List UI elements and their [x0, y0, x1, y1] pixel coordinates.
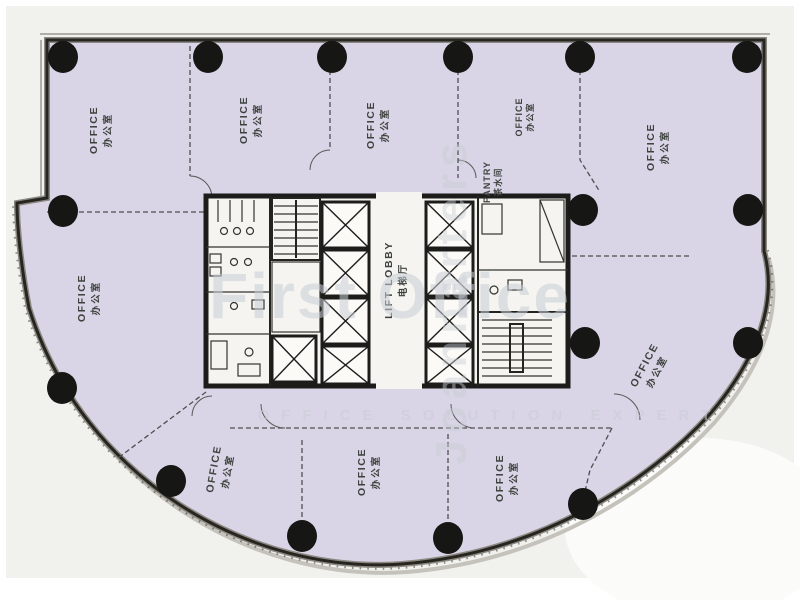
column-dot	[317, 41, 347, 73]
floor-plan: OFFICE 办公室 OFFICE 办公室 OFFICE 办公室 OFFICE …	[0, 0, 800, 600]
column-dot	[48, 195, 78, 227]
column-dot	[732, 41, 762, 73]
column-dot	[47, 372, 77, 404]
svg-text:OFFICE: OFFICE	[365, 101, 377, 149]
column-dot	[570, 327, 600, 359]
svg-text:办公室: 办公室	[659, 130, 671, 165]
svg-text:办公室: 办公室	[525, 102, 535, 131]
svg-text:OFFICE: OFFICE	[494, 454, 506, 502]
watermark-brand: First Office	[209, 260, 571, 332]
svg-text:PANTRY: PANTRY	[482, 161, 492, 203]
column-dot	[733, 327, 763, 359]
column-dot	[568, 488, 598, 520]
svg-text:办公室: 办公室	[379, 108, 391, 143]
svg-text:办公室: 办公室	[252, 103, 264, 138]
lobby-opening-bottom	[376, 382, 422, 389]
svg-text:办公室: 办公室	[370, 455, 382, 490]
floor-plan-canvas: OFFICE 办公室 OFFICE 办公室 OFFICE 办公室 OFFICE …	[0, 0, 800, 600]
svg-text:茶水间: 茶水间	[493, 167, 503, 197]
svg-text:OFFICE: OFFICE	[645, 123, 657, 171]
svg-text:办公室: 办公室	[90, 281, 102, 316]
service-lift	[272, 336, 316, 382]
column-dot	[287, 520, 317, 552]
svg-text:OFFICE: OFFICE	[238, 96, 250, 144]
column-dot	[433, 522, 463, 554]
watermark-vertical: Joannarters	[427, 136, 476, 465]
svg-text:办公室: 办公室	[102, 113, 114, 148]
office-label-top-4: OFFICE 办公室	[514, 98, 535, 137]
svg-text:办公室: 办公室	[508, 461, 520, 496]
column-dot	[193, 41, 223, 73]
svg-text:OFFICE: OFFICE	[514, 98, 524, 137]
watermark-tagline: OFFICE SOLUTION EXPERT	[258, 407, 723, 424]
column-dot	[443, 41, 473, 73]
column-dot	[156, 465, 186, 497]
column-dot	[565, 41, 595, 73]
svg-text:OFFICE: OFFICE	[88, 106, 100, 154]
column-dot	[568, 194, 598, 226]
column-dot	[48, 41, 78, 73]
svg-text:OFFICE: OFFICE	[356, 448, 368, 496]
column-dot	[733, 194, 763, 226]
lobby-opening-top	[376, 192, 422, 199]
svg-text:OFFICE: OFFICE	[76, 274, 88, 322]
